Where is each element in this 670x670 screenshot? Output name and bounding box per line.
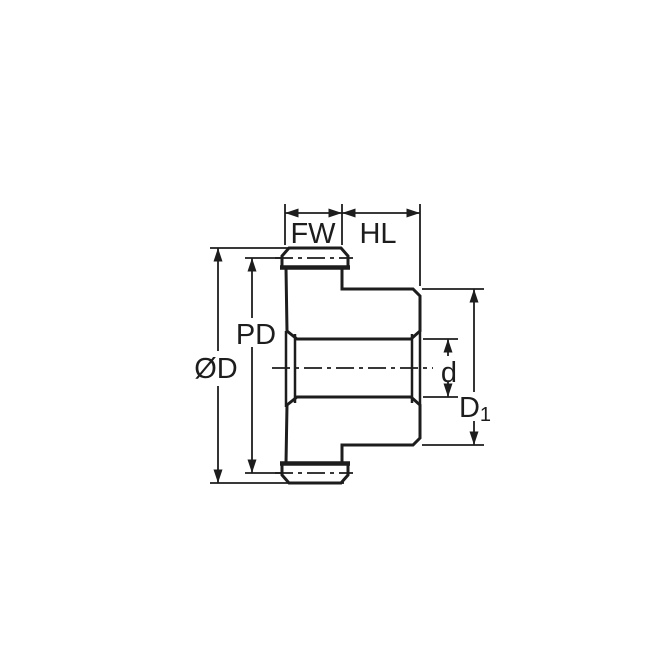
gear-body-lower [286, 397, 420, 463]
label-hub-length: HL [359, 218, 396, 250]
dim-face-width-hub-length: FW HL [285, 204, 420, 286]
label-hub-diameter-subscript: 1 [480, 404, 491, 426]
dim-outside-diameter: ØD [194, 248, 344, 483]
label-hub-diameter-main: D [459, 392, 480, 424]
label-bore-diameter: d [441, 357, 457, 389]
label-outside-diameter: ØD [194, 353, 238, 385]
diagram-canvas: FW HL ØD PD d D1 [0, 0, 670, 670]
label-hub-diameter: D1 [459, 392, 491, 426]
gear-body-upper [286, 268, 420, 339]
label-pitch-diameter: PD [236, 319, 276, 351]
label-face-width: FW [290, 218, 336, 250]
dim-pitch-diameter: PD [236, 258, 281, 473]
gear-dimension-diagram: FW HL ØD PD d D1 [0, 0, 670, 670]
gear-cross-section [280, 248, 420, 483]
dim-bore-diameter: d [423, 339, 458, 397]
